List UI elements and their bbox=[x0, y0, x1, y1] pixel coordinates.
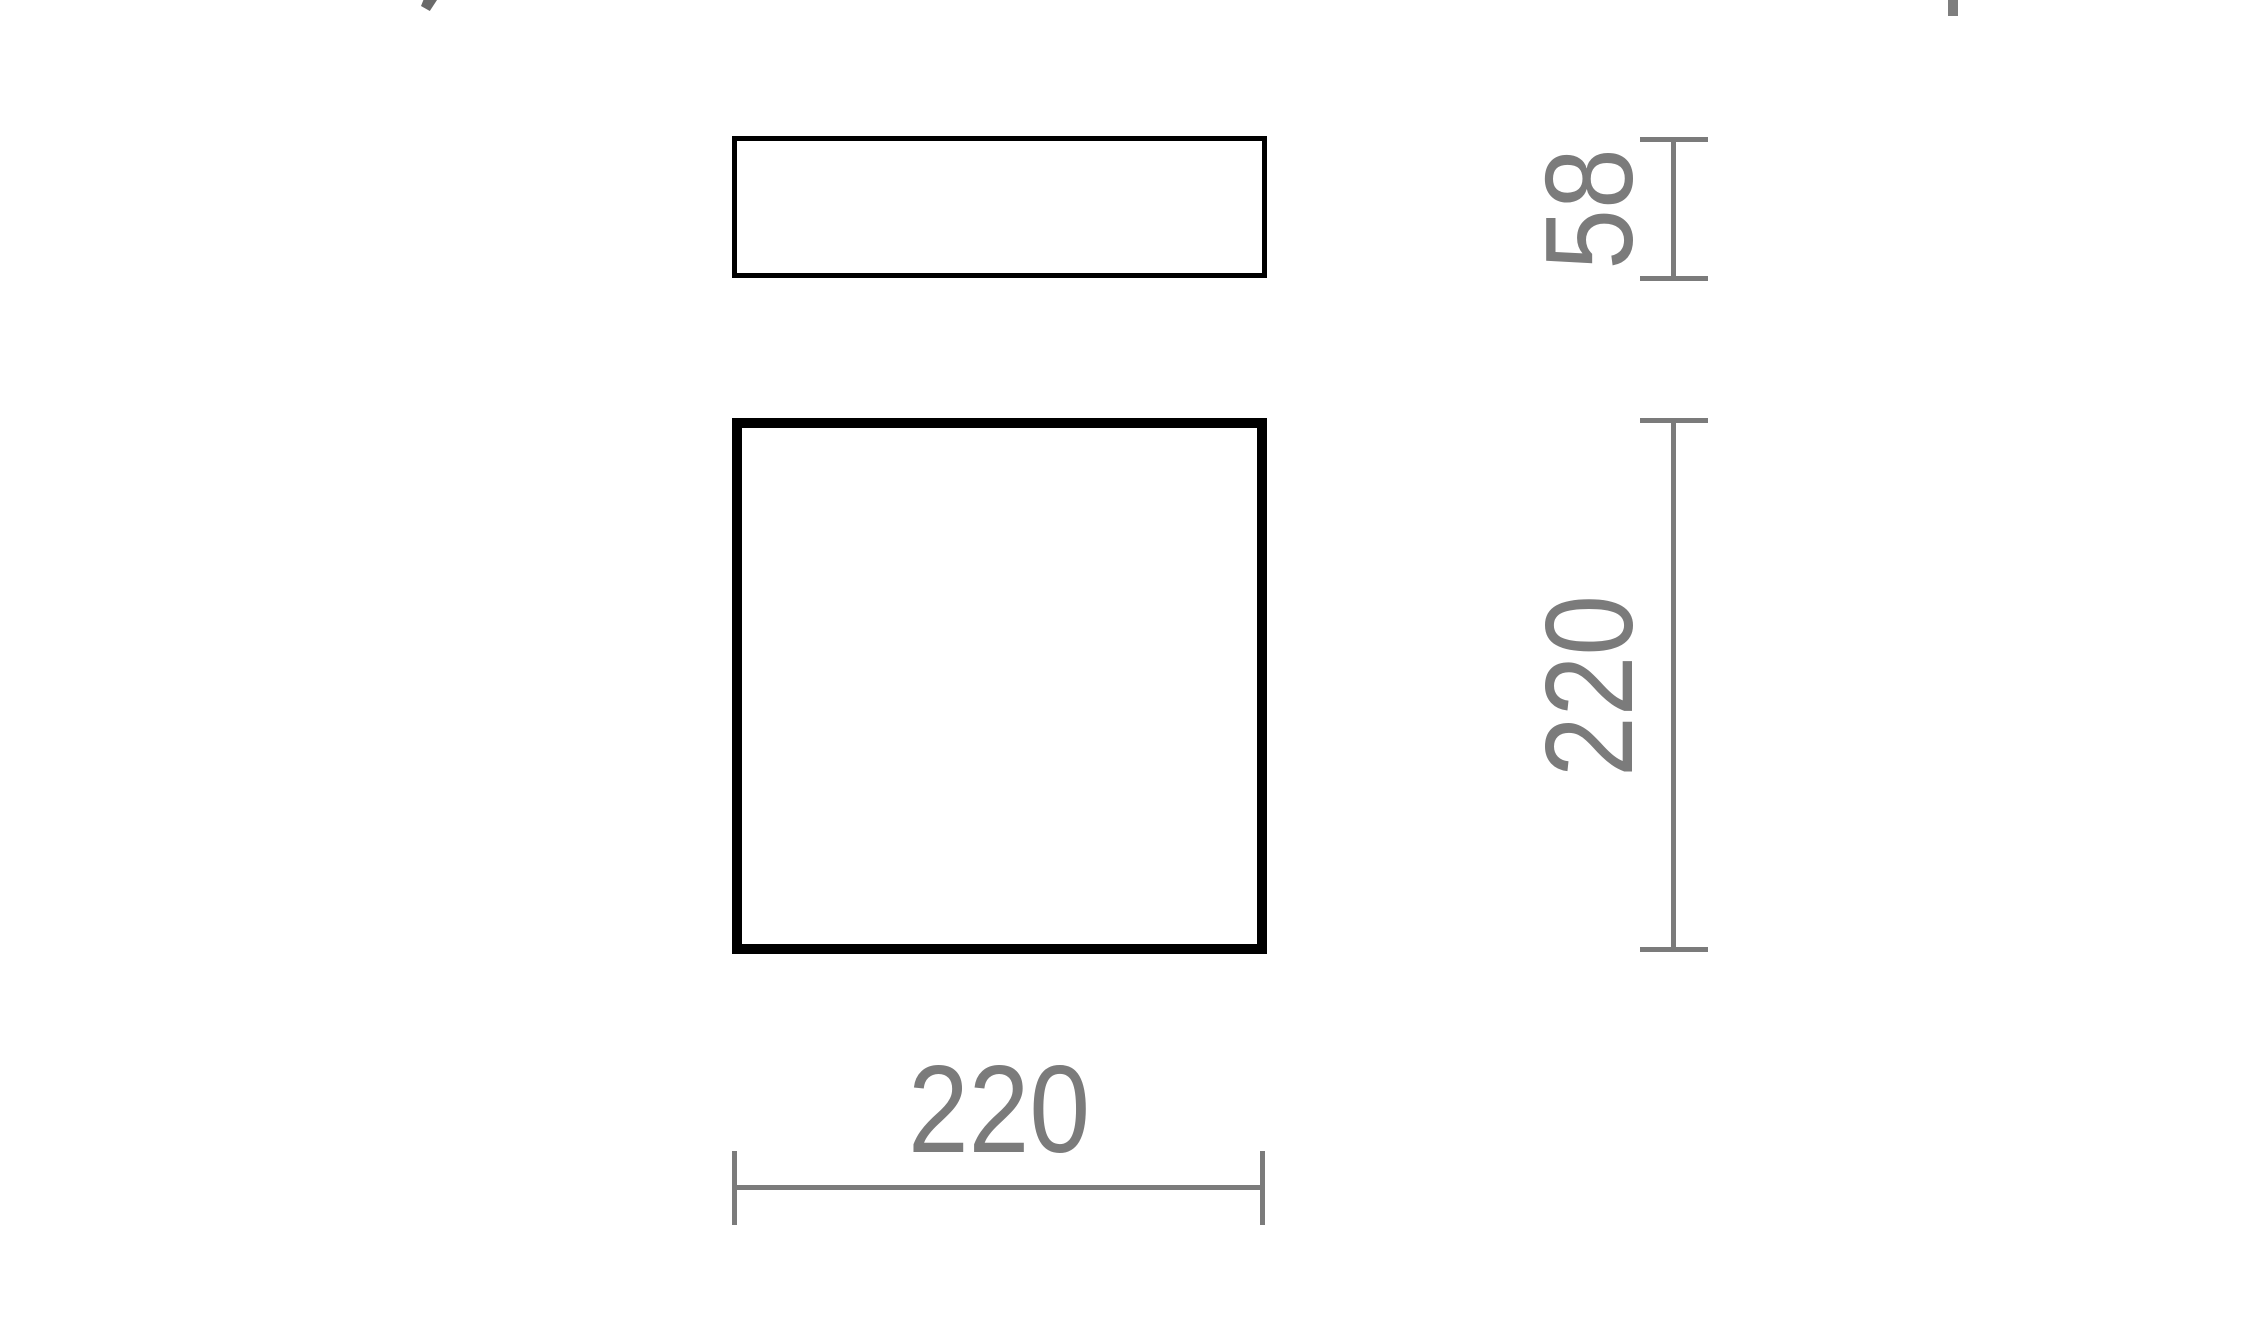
cropped-glyph-fragment-icon bbox=[421, 0, 437, 11]
dim-label-side-height: 58 bbox=[1515, 77, 1665, 341]
dimension-drawing-canvas: 58 220 220 bbox=[0, 0, 2268, 1323]
dim-label-front-height: 220 bbox=[1515, 554, 1665, 818]
dim-line-220-bottom bbox=[734, 1185, 1265, 1190]
side-view-outline bbox=[732, 136, 1267, 278]
dim-cap-220-bottom-right bbox=[1260, 1151, 1265, 1225]
dim-line-220-right bbox=[1671, 419, 1676, 952]
dim-cap-220-right-bottom bbox=[1640, 947, 1708, 952]
dim-label-front-width: 220 bbox=[867, 1035, 1131, 1185]
cropped-bar-fragment-icon bbox=[1948, 0, 1958, 16]
dim-cap-220-bottom-left bbox=[732, 1151, 737, 1225]
front-view-outline bbox=[732, 418, 1267, 954]
dim-cap-220-right-top bbox=[1640, 418, 1708, 423]
dim-line-58 bbox=[1671, 137, 1676, 281]
